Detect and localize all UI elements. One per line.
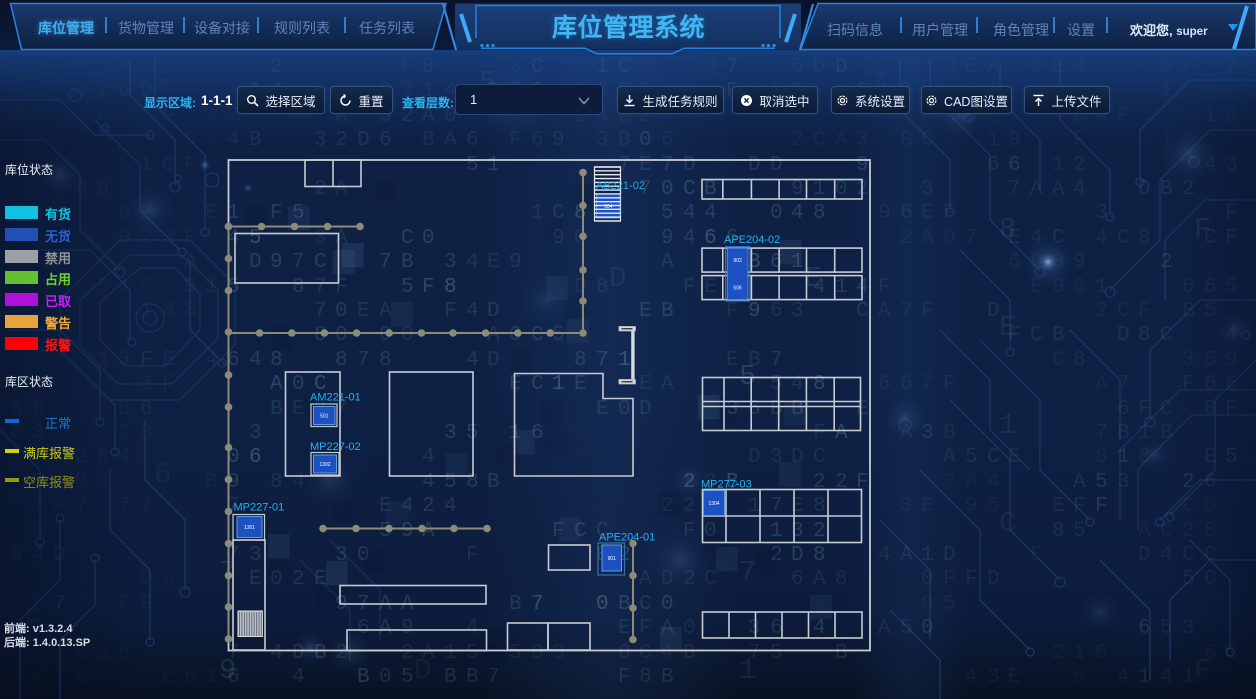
svg-text:501: 501	[320, 413, 329, 419]
svg-text:901: 901	[608, 556, 617, 562]
svg-text:MP277-03: MP277-03	[701, 479, 752, 491]
svg-text:506: 506	[733, 286, 742, 292]
svg-text:1302: 1302	[319, 462, 330, 468]
svg-text:AM221-01: AM221-01	[310, 392, 361, 404]
svg-text:1304: 1304	[708, 501, 719, 507]
svg-text:MP227-01: MP227-01	[234, 502, 285, 514]
svg-text:APE204-01: APE204-01	[599, 532, 655, 544]
svg-text:1301: 1301	[244, 525, 255, 531]
svg-text:APE204-02: APE204-02	[724, 234, 780, 246]
svg-text:AB221-02: AB221-02	[596, 180, 645, 192]
svg-text:MP227-02: MP227-02	[310, 441, 361, 453]
svg-text:902: 902	[733, 258, 742, 264]
